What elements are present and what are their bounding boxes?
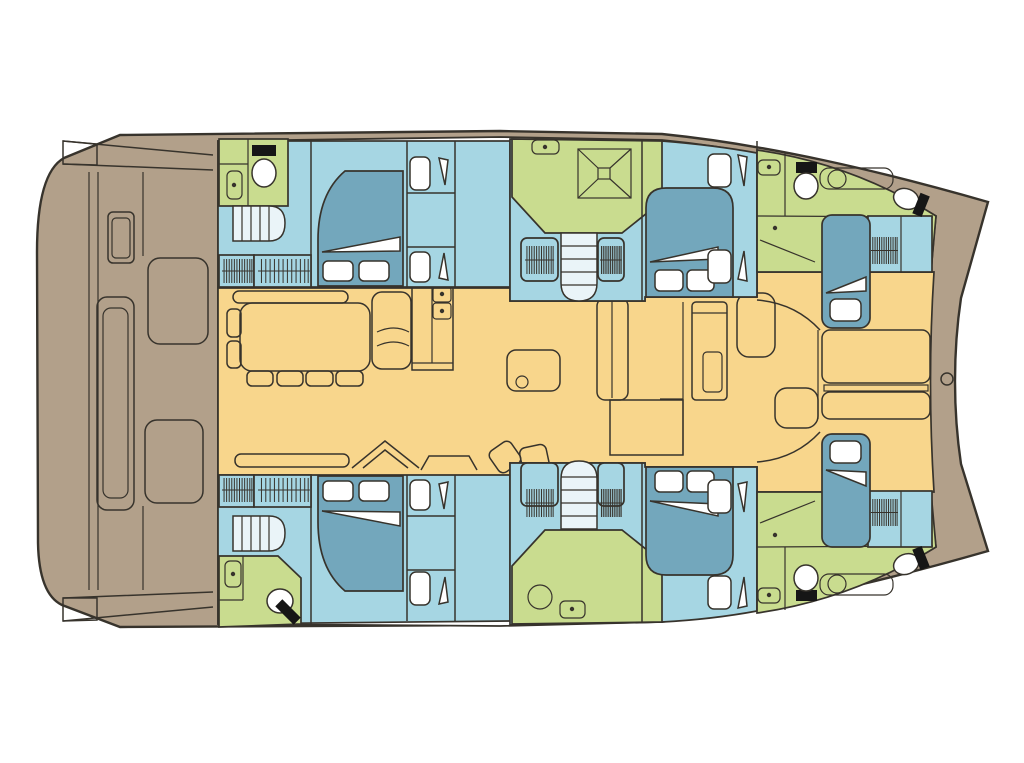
starboard-mid-shower	[512, 530, 662, 624]
nightstand	[708, 250, 731, 283]
nightstand	[708, 576, 731, 609]
stairs-icon	[561, 461, 597, 529]
nightstand	[708, 480, 731, 513]
nightstand	[410, 252, 430, 282]
toilet-icon	[794, 162, 818, 199]
pillow-icon	[655, 471, 683, 492]
single-bed-icon	[822, 434, 870, 547]
nightstand	[410, 157, 430, 190]
pillow-icon	[830, 441, 861, 463]
pillow-icon	[359, 261, 389, 281]
double-bed-icon	[318, 476, 403, 591]
pillow-icon	[323, 481, 353, 501]
pillow-icon	[655, 270, 683, 291]
stairs-icon	[561, 233, 597, 301]
floor-plan-page	[0, 0, 1024, 763]
nightstand	[410, 572, 430, 605]
pillow-icon	[830, 299, 861, 321]
pillow-icon	[359, 481, 389, 501]
pillow-icon	[323, 261, 353, 281]
toilet-icon	[794, 565, 818, 601]
stairs-icon	[233, 516, 285, 551]
floor-plan-canvas	[0, 0, 1024, 763]
double-bed-icon	[318, 171, 403, 286]
stairs-icon	[233, 206, 285, 241]
toilet-icon	[252, 145, 276, 187]
nightstand	[708, 154, 731, 187]
nightstand	[410, 480, 430, 510]
single-bed-icon	[822, 215, 870, 328]
